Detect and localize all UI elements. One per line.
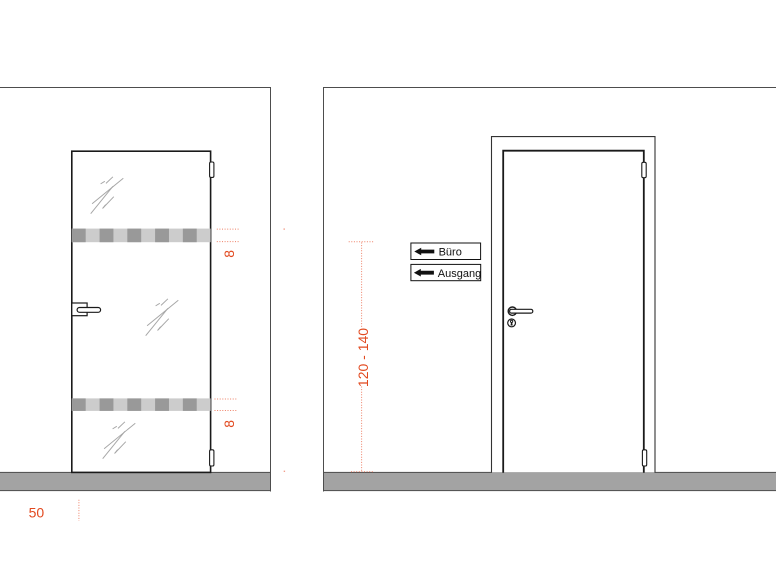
svg-text:Büro: Büro — [439, 247, 462, 259]
svg-text:Ausgang: Ausgang — [438, 268, 481, 280]
svg-text:8: 8 — [221, 420, 237, 428]
svg-text:8: 8 — [221, 250, 237, 258]
svg-text:50: 50 — [29, 505, 45, 521]
svg-text:120 - 140: 120 - 140 — [355, 328, 371, 387]
